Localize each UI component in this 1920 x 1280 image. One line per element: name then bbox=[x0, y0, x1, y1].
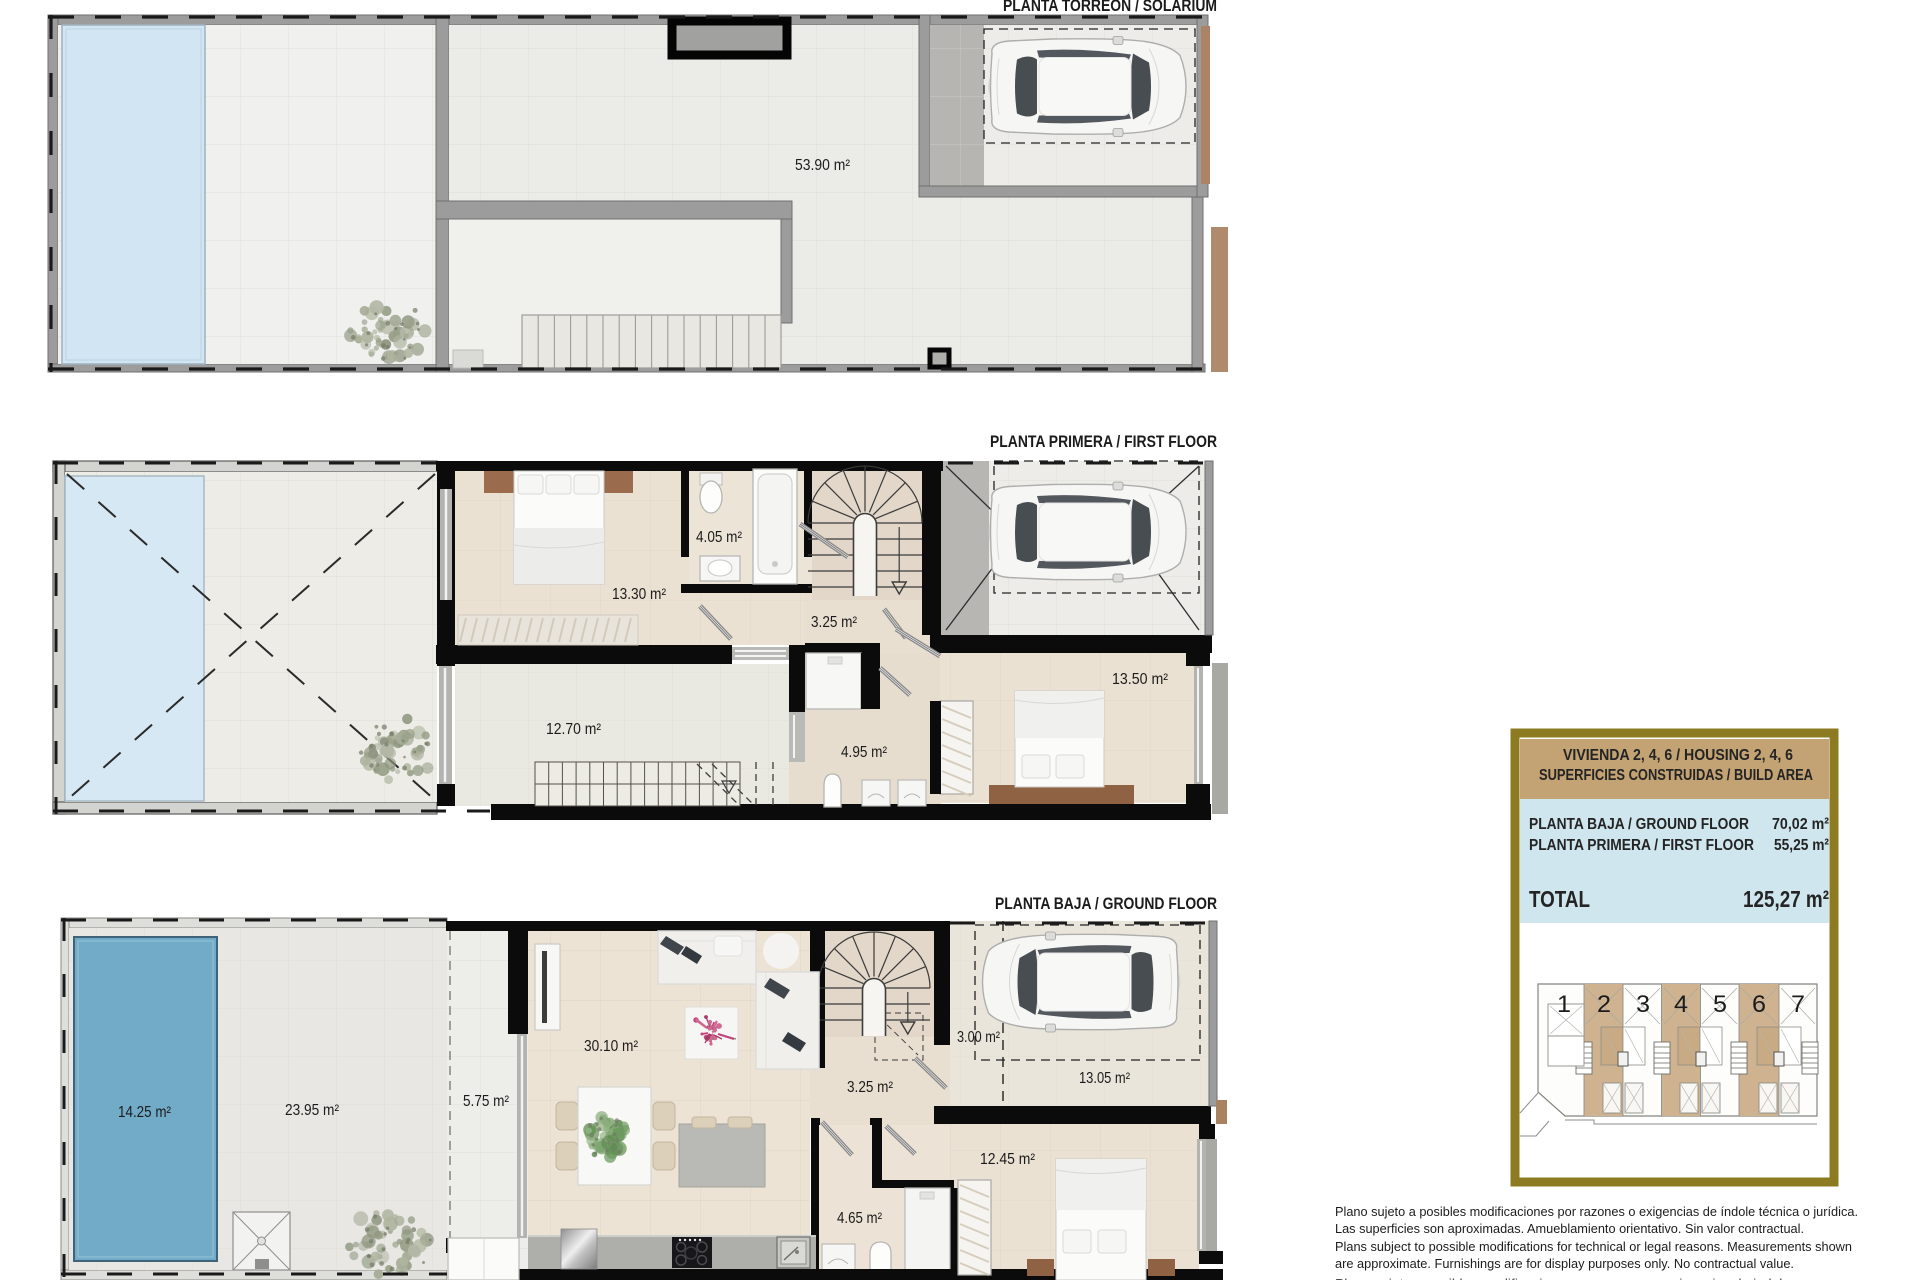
svg-text:55,25 m²: 55,25 m² bbox=[1774, 837, 1829, 854]
svg-text:13.30 m²: 13.30 m² bbox=[612, 586, 666, 603]
svg-text:Plans subject to possible modi: Plans subject to possible modifications … bbox=[1335, 1239, 1852, 1254]
svg-text:7: 7 bbox=[1791, 991, 1805, 1018]
svg-text:PLANTA PRIMERA / FIRST FLOOR: PLANTA PRIMERA / FIRST FLOOR bbox=[990, 433, 1217, 451]
svg-text:are approximate. Furnishings a: are approximate. Furnishings are for dis… bbox=[1335, 1256, 1794, 1271]
svg-text:125,27 m²: 125,27 m² bbox=[1743, 886, 1829, 912]
svg-text:4.05 m²: 4.05 m² bbox=[696, 529, 742, 546]
svg-text:Plano sujeto a posibles modifi: Plano sujeto a posibles modificaciones p… bbox=[1335, 1204, 1858, 1219]
svg-text:PLANTA BAJA / GROUND FLOOR: PLANTA BAJA / GROUND FLOOR bbox=[995, 895, 1217, 913]
svg-text:4.95 m²: 4.95 m² bbox=[841, 744, 887, 761]
svg-text:12.70 m²: 12.70 m² bbox=[546, 721, 601, 738]
svg-text:3: 3 bbox=[1636, 991, 1650, 1018]
svg-text:Plano sujeto a posibles modifi: Plano sujeto a posibles modificaciones p… bbox=[1335, 1276, 1790, 1280]
svg-text:SUPERFICIES CONSTRUIDAS / BUIL: SUPERFICIES CONSTRUIDAS / BUILD AREA bbox=[1539, 767, 1813, 784]
svg-text:5.75 m²: 5.75 m² bbox=[463, 1093, 509, 1110]
svg-text:53.90 m²: 53.90 m² bbox=[795, 157, 850, 174]
svg-text:12.45 m²: 12.45 m² bbox=[980, 1151, 1035, 1168]
svg-text:Las superficies son aproximada: Las superficies son aproximadas. Amuebla… bbox=[1335, 1221, 1804, 1236]
svg-text:PLANTA TORREÓN / SOLARIUM: PLANTA TORREÓN / SOLARIUM bbox=[1003, 0, 1217, 15]
svg-text:PLANTA BAJA / GROUND FLOOR: PLANTA BAJA / GROUND FLOOR bbox=[1529, 816, 1749, 833]
svg-text:70,02 m²: 70,02 m² bbox=[1772, 816, 1829, 833]
svg-text:3.25 m²: 3.25 m² bbox=[847, 1079, 893, 1096]
svg-text:2: 2 bbox=[1597, 991, 1611, 1018]
svg-text:6: 6 bbox=[1752, 991, 1766, 1018]
svg-text:PLANTA PRIMERA / FIRST FLOOR: PLANTA PRIMERA / FIRST FLOOR bbox=[1529, 837, 1754, 854]
svg-text:5: 5 bbox=[1713, 991, 1727, 1018]
svg-text:TOTAL: TOTAL bbox=[1529, 886, 1590, 912]
svg-text:14.25 m²: 14.25 m² bbox=[118, 1104, 171, 1121]
svg-text:23.95 m²: 23.95 m² bbox=[285, 1102, 339, 1119]
svg-text:VIVIENDA 2, 4, 6 / HOUSING 2,: VIVIENDA 2, 4, 6 / HOUSING 2, 4, 6 bbox=[1563, 747, 1793, 764]
svg-text:3.25 m²: 3.25 m² bbox=[811, 614, 857, 631]
svg-text:30.10 m²: 30.10 m² bbox=[584, 1038, 638, 1055]
svg-text:3.00 m²: 3.00 m² bbox=[957, 1029, 1000, 1046]
svg-text:4.65 m²: 4.65 m² bbox=[837, 1210, 882, 1227]
svg-text:1: 1 bbox=[1557, 991, 1571, 1018]
svg-text:13.05 m²: 13.05 m² bbox=[1079, 1070, 1130, 1087]
svg-text:13.50 m²: 13.50 m² bbox=[1112, 671, 1168, 688]
svg-text:4: 4 bbox=[1674, 991, 1688, 1018]
